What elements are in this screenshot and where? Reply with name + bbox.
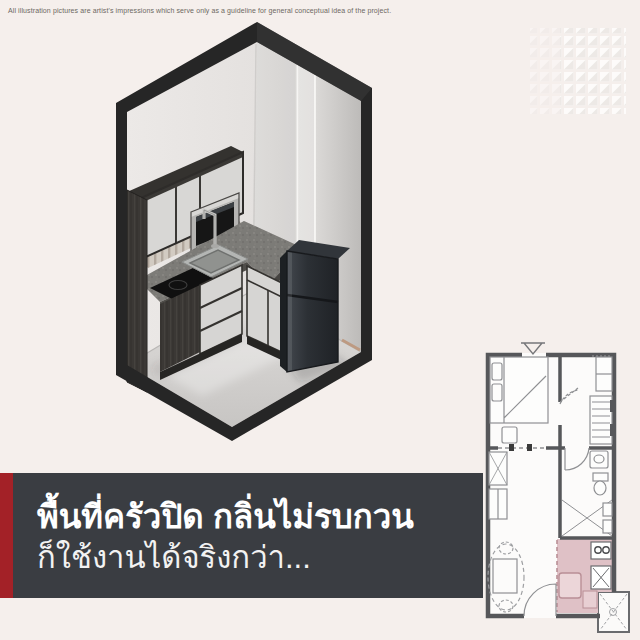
disclaimer-text: All illustration pictures are artist's i… <box>8 7 438 14</box>
wood-side-panel <box>127 190 147 392</box>
bed <box>490 357 548 423</box>
headline-banner: พื้นที่ครัวปิด กลิ่นไม่รบกวน ก็ใช้งานได้… <box>0 473 483 598</box>
floor-plan <box>486 343 629 632</box>
poster: { "page": { "background_color": "#f5efec… <box>0 0 640 640</box>
entrance-marker <box>521 343 545 354</box>
tv-unit <box>489 452 507 519</box>
red-accent-bar <box>0 473 13 598</box>
bedside-table <box>502 427 517 443</box>
headline-line1: พื้นที่ครัวปิด กลิ่นไม่รบกวน <box>37 495 483 540</box>
headline-line2: ก็ใช้งานได้จริงกว่า... <box>37 539 483 576</box>
watermark-logo <box>530 28 626 114</box>
kitchen-3d-illustration <box>116 22 372 441</box>
